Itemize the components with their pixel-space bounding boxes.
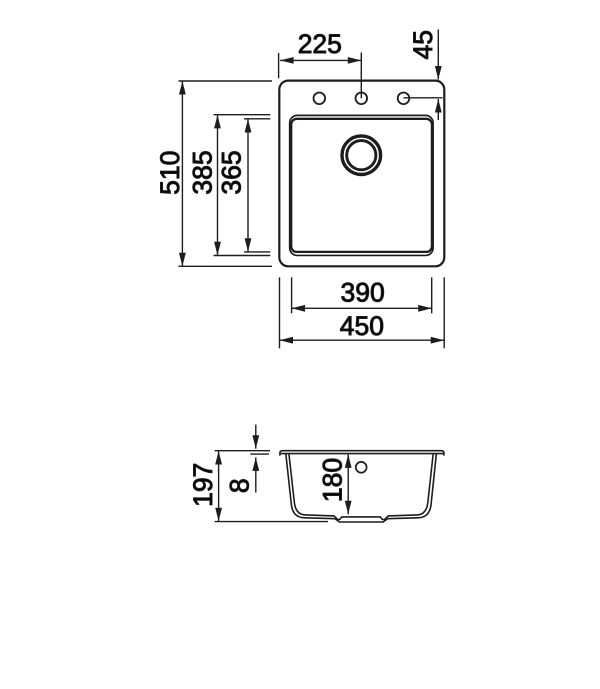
svg-text:197: 197	[188, 463, 218, 507]
svg-text:8: 8	[224, 478, 254, 493]
svg-text:180: 180	[317, 458, 347, 502]
svg-text:510: 510	[155, 151, 185, 195]
svg-text:365: 365	[217, 150, 247, 194]
svg-text:450: 450	[340, 311, 384, 341]
svg-text:390: 390	[340, 277, 384, 307]
svg-text:225: 225	[298, 29, 342, 59]
svg-text:45: 45	[408, 30, 438, 59]
svg-text:385: 385	[187, 150, 217, 194]
